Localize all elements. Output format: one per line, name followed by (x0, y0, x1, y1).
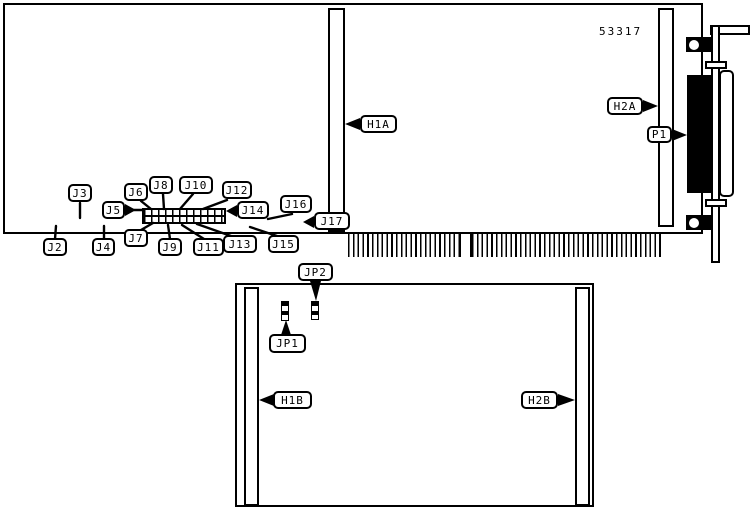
header-h1b (244, 287, 259, 506)
main-board-outline (3, 3, 703, 234)
header-h2b (575, 287, 590, 506)
callout-p1: P1 (647, 126, 672, 143)
callout-j17: J17 (314, 212, 350, 230)
callout-jp2: JP2 (298, 263, 333, 281)
callout-j2: J2 (43, 238, 67, 256)
callout-j11: J11 (193, 238, 224, 256)
callout-j14: J14 (237, 201, 269, 219)
screw-hole-icon (689, 218, 699, 228)
edge-key-notch (459, 234, 472, 257)
jackscrew-bottom (705, 199, 727, 207)
connector-p1 (687, 75, 711, 193)
callout-h1a: H1A (360, 115, 397, 133)
callout-j9: J9 (158, 238, 182, 256)
callout-j10: J10 (179, 176, 213, 194)
db-connector-shell (719, 70, 734, 197)
header-h2a (658, 8, 674, 227)
callout-j5: J5 (102, 201, 125, 219)
screw-hole-icon (689, 40, 699, 50)
callout-j4: J4 (92, 238, 115, 256)
callout-j8: J8 (149, 176, 173, 194)
part-number: 53317 (599, 25, 642, 38)
edge-fingers-left (348, 234, 459, 257)
callout-h2a: H2A (607, 97, 643, 115)
callout-j16: J16 (280, 195, 312, 213)
callout-j12: J12 (222, 181, 252, 199)
jumper-strip-j5-j13 (142, 208, 226, 224)
callout-h2b: H2B (521, 391, 558, 409)
callout-h1b: H1B (273, 391, 312, 409)
jackscrew-top (705, 61, 727, 69)
callout-j13: J13 (223, 235, 257, 253)
callout-j7: J7 (124, 229, 148, 247)
callout-j6: J6 (124, 183, 148, 201)
jumper-jp1 (281, 301, 289, 321)
bracket-screw-top (686, 37, 711, 52)
board-layout-diagram: 53317 (0, 0, 752, 512)
jumper-jp2 (311, 301, 319, 320)
bracket-screw-bottom (686, 215, 711, 230)
callout-j3: J3 (68, 184, 92, 202)
callout-jp1: JP1 (269, 334, 306, 353)
edge-fingers-right (472, 234, 662, 257)
callout-j15: J15 (268, 235, 299, 253)
header-h1a (328, 8, 345, 232)
